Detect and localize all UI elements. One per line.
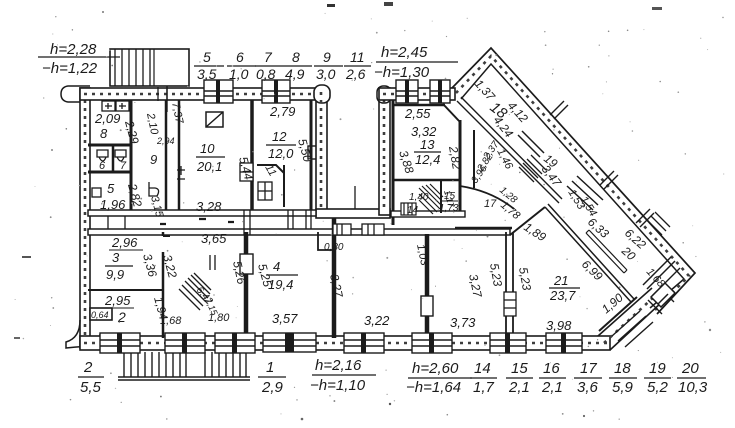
svg-text:1,89: 1,89 [521,220,548,245]
svg-text:5,2: 5,2 [647,379,669,396]
svg-text:10,3: 10,3 [678,379,708,396]
svg-text:9,9: 9,9 [106,267,124,282]
svg-text:h=2,28: h=2,28 [50,41,97,58]
svg-text:1,96: 1,96 [100,197,126,212]
svg-text:18: 18 [614,360,631,377]
svg-text:16: 16 [543,360,560,377]
svg-text:5,9: 5,9 [612,379,634,396]
svg-text:1,7: 1,7 [473,379,495,396]
svg-text:0,64: 0,64 [91,310,109,320]
svg-text:0,80: 0,80 [324,242,344,253]
svg-text:3,22: 3,22 [364,313,390,328]
svg-text:9: 9 [150,152,157,167]
svg-text:20,1: 20,1 [196,159,222,174]
svg-text:2,1: 2,1 [508,379,530,396]
svg-text:3,6: 3,6 [577,379,599,396]
svg-text:17: 17 [580,360,597,377]
svg-text:h=2,45: h=2,45 [381,44,428,61]
svg-text:5,5: 5,5 [80,379,102,396]
svg-text:2,95: 2,95 [104,293,131,308]
svg-text:3,0: 3,0 [316,66,336,82]
svg-text:3,57: 3,57 [272,311,298,326]
svg-text:3,65: 3,65 [201,231,227,246]
svg-text:6: 6 [236,49,244,65]
svg-text:23,7: 23,7 [549,288,576,303]
svg-text:2: 2 [117,309,126,325]
svg-text:11: 11 [350,49,365,65]
svg-text:7: 7 [120,160,127,172]
svg-text:7: 7 [264,49,273,65]
svg-text:1,46: 1,46 [494,147,515,172]
svg-text:3,27: 3,27 [327,273,346,300]
svg-text:14: 14 [474,360,491,377]
svg-text:7,37: 7,37 [169,101,185,125]
svg-text:3,36: 3,36 [140,252,160,278]
svg-text:2,55: 2,55 [404,106,431,121]
svg-text:−h=1,64: −h=1,64 [406,379,461,396]
svg-text:2,9: 2,9 [261,379,284,396]
svg-text:2,82: 2,82 [446,144,464,171]
svg-text:2,79: 2,79 [269,104,295,119]
svg-text:2,10: 2,10 [144,111,161,136]
svg-text:−h=1,10: −h=1,10 [310,377,366,394]
svg-text:5,23: 5,23 [516,266,534,292]
svg-text:2,6: 2,6 [345,66,366,82]
svg-text:14: 14 [407,205,419,216]
svg-text:2,29: 2,29 [122,118,142,145]
svg-text:6: 6 [99,160,106,172]
svg-text:3,28: 3,28 [196,199,222,214]
svg-text:3: 3 [112,250,120,265]
svg-text:2: 2 [83,359,93,376]
svg-text:2,1: 2,1 [541,379,563,396]
svg-text:h=2,60: h=2,60 [412,360,459,377]
svg-text:12,0: 12,0 [268,146,294,161]
svg-text:21: 21 [553,273,568,288]
svg-text:5: 5 [107,181,115,196]
svg-text:2,96: 2,96 [111,235,138,250]
svg-text:1,68: 1,68 [160,315,182,327]
svg-text:h=2,16: h=2,16 [315,357,362,374]
svg-text:12: 12 [272,129,287,144]
svg-text:3,27: 3,27 [466,273,485,300]
svg-text:4,9: 4,9 [285,66,305,82]
svg-text:8: 8 [100,126,108,141]
svg-text:3,98: 3,98 [546,318,572,333]
svg-text:5,25: 5,25 [255,262,275,288]
svg-text:12,4: 12,4 [415,152,440,167]
svg-text:5: 5 [203,49,211,65]
svg-text:9: 9 [323,49,331,65]
svg-text:13: 13 [420,137,435,152]
svg-text:1: 1 [266,359,274,376]
svg-text:6,99: 6,99 [579,257,606,284]
svg-text:5,23: 5,23 [487,262,505,288]
svg-text:3,5: 3,5 [197,66,217,82]
svg-text:3,88: 3,88 [396,149,417,176]
svg-text:3,73: 3,73 [450,315,476,330]
svg-text:20: 20 [681,360,699,377]
svg-text:8: 8 [292,49,300,65]
svg-text:17: 17 [484,198,497,210]
svg-text:1,0: 1,0 [229,66,249,82]
svg-text:2,09: 2,09 [94,111,120,126]
svg-text:−h=1,22: −h=1,22 [42,60,98,77]
svg-text:19: 19 [649,360,666,377]
svg-text:1,90: 1,90 [599,290,626,316]
svg-text:2,94: 2,94 [156,136,175,146]
svg-text:1,78: 1,78 [498,199,523,223]
svg-text:15: 15 [511,360,528,377]
svg-text:4: 4 [273,259,280,274]
svg-text:1,40: 1,40 [409,192,429,203]
svg-text:10: 10 [200,141,215,156]
svg-text:6,33: 6,33 [585,215,612,241]
svg-text:0,8: 0,8 [256,66,276,82]
svg-text:−h=1,30: −h=1,30 [374,64,430,81]
svg-text:2,82: 2,82 [125,181,145,208]
